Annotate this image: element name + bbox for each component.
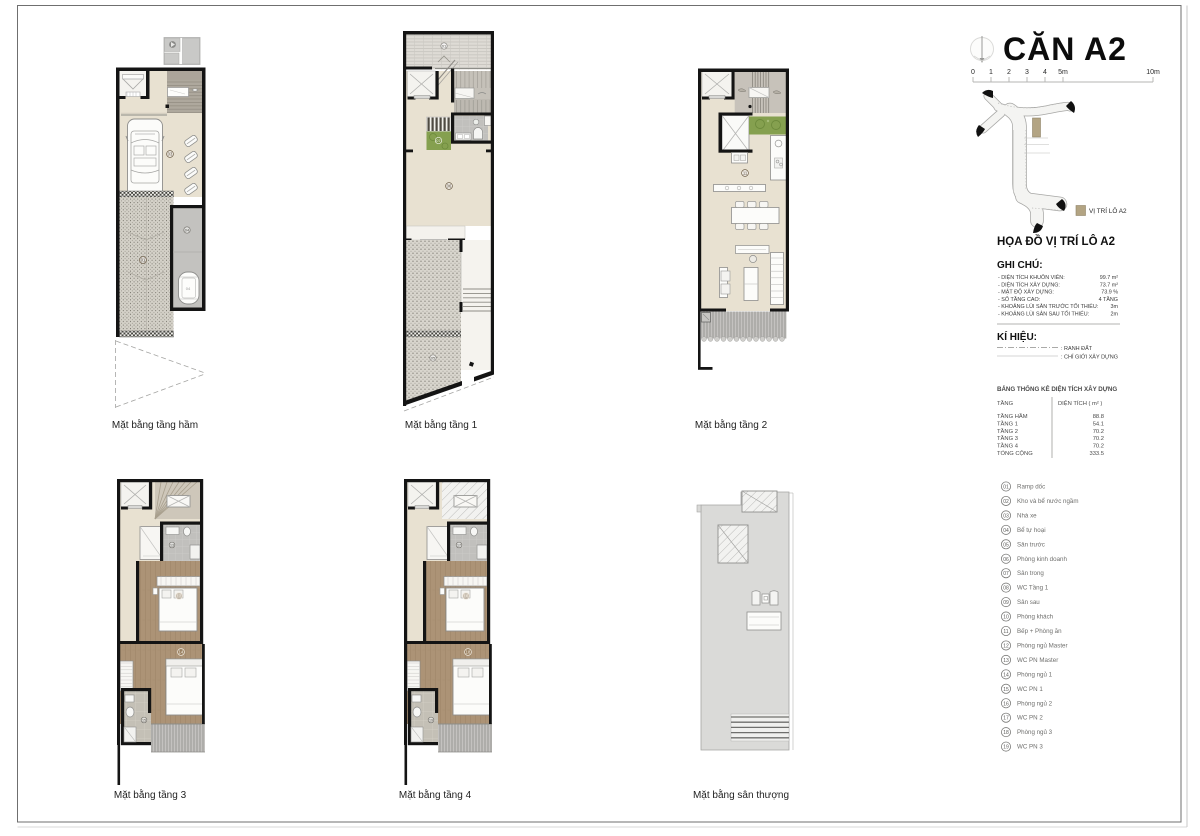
svg-text:3m: 3m bbox=[1111, 304, 1119, 310]
svg-text:3: 3 bbox=[1025, 69, 1029, 76]
svg-text:14: 14 bbox=[1003, 672, 1009, 678]
svg-text:- MẬT ĐỘ XÂY DỰNG:: - MẬT ĐỘ XÂY DỰNG: bbox=[998, 289, 1054, 296]
svg-text:Phòng khách: Phòng khách bbox=[1017, 614, 1054, 621]
svg-text:KÍ HIỆU:: KÍ HIỆU: bbox=[997, 330, 1037, 343]
svg-text:WC PN 1: WC PN 1 bbox=[1017, 686, 1043, 693]
svg-text:Sân trong: Sân trong bbox=[1017, 570, 1044, 577]
svg-text:1: 1 bbox=[989, 69, 993, 76]
svg-text:Bể tự hoại: Bể tự hoại bbox=[1017, 527, 1046, 534]
svg-text:GHI CHÚ:: GHI CHÚ: bbox=[997, 258, 1043, 271]
svg-text:Phòng ngủ Master: Phòng ngủ Master bbox=[1017, 642, 1068, 649]
svg-text:0: 0 bbox=[971, 69, 975, 76]
svg-text:WC Tầng 1: WC Tầng 1 bbox=[1017, 585, 1049, 592]
svg-text:15: 15 bbox=[1003, 687, 1009, 693]
svg-text:18: 18 bbox=[1003, 730, 1009, 736]
svg-text:DIỆN TÍCH ( m² ): DIỆN TÍCH ( m² ) bbox=[1058, 399, 1102, 407]
svg-text:- KHOẢNG LÙI SÂN SAU TỐI THIỂU: - KHOẢNG LÙI SÂN SAU TỐI THIỂU: bbox=[998, 311, 1089, 318]
svg-text:2: 2 bbox=[1007, 69, 1011, 76]
svg-text:70.2: 70.2 bbox=[1093, 436, 1104, 442]
svg-text:16: 16 bbox=[1003, 701, 1009, 707]
svg-text:73.9 %: 73.9 % bbox=[1101, 290, 1118, 296]
svg-text:05: 05 bbox=[431, 356, 436, 361]
svg-text:Mặt bằng tầng hầm: Mặt bằng tầng hầm bbox=[112, 418, 198, 431]
svg-text:TẦNG: TẦNG bbox=[997, 400, 1014, 407]
svg-text:11: 11 bbox=[1003, 629, 1008, 635]
svg-text:06: 06 bbox=[1003, 557, 1009, 563]
svg-text:Phòng kinh doanh: Phòng kinh doanh bbox=[1017, 556, 1067, 563]
svg-text:10: 10 bbox=[1003, 615, 1009, 621]
svg-text:VỊ TRÍ LÔ A2: VỊ TRÍ LÔ A2 bbox=[1089, 206, 1127, 215]
svg-text:TẦNG HẦM: TẦNG HẦM bbox=[997, 413, 1028, 420]
svg-text:- DIỆN TÍCH KHUÔN VIÊN:: - DIỆN TÍCH KHUÔN VIÊN: bbox=[998, 273, 1065, 281]
svg-text:Bếp + Phòng ăn: Bếp + Phòng ăn bbox=[1017, 628, 1062, 635]
svg-text:17: 17 bbox=[457, 544, 461, 548]
svg-text:5m: 5m bbox=[1058, 69, 1068, 76]
svg-text:01: 01 bbox=[442, 44, 447, 49]
svg-text:19: 19 bbox=[429, 719, 433, 723]
svg-text:4 TẦNG: 4 TẦNG bbox=[1099, 296, 1118, 303]
svg-text:04: 04 bbox=[1003, 528, 1009, 534]
svg-text:4: 4 bbox=[1043, 69, 1047, 76]
svg-text:09: 09 bbox=[1003, 600, 1009, 606]
svg-text:WC PN Master: WC PN Master bbox=[1017, 657, 1058, 664]
svg-text:Kho và bể nước ngầm: Kho và bể nước ngầm bbox=[1017, 498, 1079, 505]
svg-text:18: 18 bbox=[466, 650, 471, 655]
svg-text:Mặt bằng sân thượng: Mặt bằng sân thượng bbox=[693, 788, 789, 801]
svg-text:99.7 m²: 99.7 m² bbox=[1100, 275, 1118, 281]
svg-text:Sân trước: Sân trước bbox=[1017, 541, 1045, 548]
svg-text:TẦNG 3: TẦNG 3 bbox=[997, 435, 1018, 442]
svg-text:07: 07 bbox=[436, 138, 441, 143]
svg-text:333.5: 333.5 bbox=[1089, 451, 1104, 457]
svg-text:04: 04 bbox=[186, 286, 191, 291]
svg-text:- SỐ TẦNG CAO:: - SỐ TẦNG CAO: bbox=[998, 296, 1040, 303]
svg-text:Phòng ngủ 1: Phòng ngủ 1 bbox=[1017, 671, 1053, 678]
svg-text:Phòng ngủ 2: Phòng ngủ 2 bbox=[1017, 700, 1053, 707]
svg-text:HỌA ĐỒ VỊ TRÍ LÔ A2: HỌA ĐỒ VỊ TRÍ LÔ A2 bbox=[997, 235, 1115, 248]
svg-text:19: 19 bbox=[1003, 745, 1009, 751]
svg-text:Nhà xe: Nhà xe bbox=[1017, 512, 1037, 519]
svg-text:54.1: 54.1 bbox=[1093, 421, 1104, 427]
svg-text:10m: 10m bbox=[1146, 69, 1160, 76]
svg-text:TẦNG 1: TẦNG 1 bbox=[997, 420, 1018, 427]
svg-text:WC PN 3: WC PN 3 bbox=[1017, 744, 1043, 751]
svg-text:03: 03 bbox=[168, 152, 173, 157]
svg-text:70.2: 70.2 bbox=[1093, 429, 1104, 435]
svg-text:08: 08 bbox=[1003, 586, 1009, 592]
svg-text:12: 12 bbox=[177, 594, 182, 599]
svg-text:11: 11 bbox=[743, 171, 748, 176]
svg-text:16: 16 bbox=[464, 594, 469, 599]
svg-text:05: 05 bbox=[1003, 542, 1009, 548]
svg-text:04: 04 bbox=[185, 228, 190, 233]
svg-text:CĂN A2: CĂN A2 bbox=[1003, 31, 1127, 67]
svg-text:2m: 2m bbox=[1111, 312, 1119, 318]
svg-text:12: 12 bbox=[1003, 643, 1009, 649]
svg-text:WC PN 2: WC PN 2 bbox=[1017, 715, 1043, 722]
svg-text:Mặt bằng tầng 4: Mặt bằng tầng 4 bbox=[399, 788, 472, 801]
svg-text:88.8: 88.8 bbox=[1093, 414, 1104, 420]
svg-text:01: 01 bbox=[141, 258, 146, 263]
svg-text:Mặt bằng tầng 2: Mặt bằng tầng 2 bbox=[695, 418, 768, 431]
svg-text:Phòng ngủ 3: Phòng ngủ 3 bbox=[1017, 729, 1053, 736]
svg-text:73.7 m²: 73.7 m² bbox=[1100, 282, 1118, 288]
svg-text:13: 13 bbox=[1003, 658, 1009, 664]
svg-text:17: 17 bbox=[1003, 716, 1009, 722]
svg-text:TẦNG 2: TẦNG 2 bbox=[997, 428, 1018, 435]
svg-text:Mặt bằng tầng 1: Mặt bằng tầng 1 bbox=[405, 418, 478, 431]
svg-text:- KHOẢNG LÙI SÂN TRƯỚC TỐI THI: - KHOẢNG LÙI SÂN TRƯỚC TỐI THIỂU: bbox=[998, 303, 1098, 310]
svg-text:02: 02 bbox=[1003, 499, 1009, 505]
svg-text:: RANH ĐẤT: : RANH ĐẤT bbox=[1061, 345, 1093, 352]
svg-text:: CHỈ GIỚI XÂY DỰNG: : CHỈ GIỚI XÂY DỰNG bbox=[1061, 354, 1118, 361]
svg-text:06: 06 bbox=[447, 184, 452, 189]
svg-text:13: 13 bbox=[170, 544, 174, 548]
svg-text:TỔNG CỘNG: TỔNG CỘNG bbox=[997, 450, 1033, 457]
svg-text:- DIỆN TÍCH XÂY DỰNG:: - DIỆN TÍCH XÂY DỰNG: bbox=[998, 280, 1060, 288]
svg-text:Mặt bằng tầng 3: Mặt bằng tầng 3 bbox=[114, 788, 187, 801]
svg-text:TẦNG 4: TẦNG 4 bbox=[997, 443, 1019, 450]
svg-text:03: 03 bbox=[1003, 513, 1009, 519]
svg-text:14: 14 bbox=[179, 650, 184, 655]
svg-text:15: 15 bbox=[142, 719, 146, 723]
svg-text:70.2: 70.2 bbox=[1093, 444, 1104, 450]
svg-text:Ramp dốc: Ramp dốc bbox=[1017, 484, 1045, 491]
svg-text:01: 01 bbox=[1003, 485, 1009, 491]
svg-text:07: 07 bbox=[1003, 571, 1009, 577]
svg-text:BẢNG THỐNG KÊ DIỆN TÍCH XÂY DỰ: BẢNG THỐNG KÊ DIỆN TÍCH XÂY DỰNG bbox=[997, 385, 1117, 393]
svg-text:Sân sau: Sân sau bbox=[1017, 599, 1040, 606]
